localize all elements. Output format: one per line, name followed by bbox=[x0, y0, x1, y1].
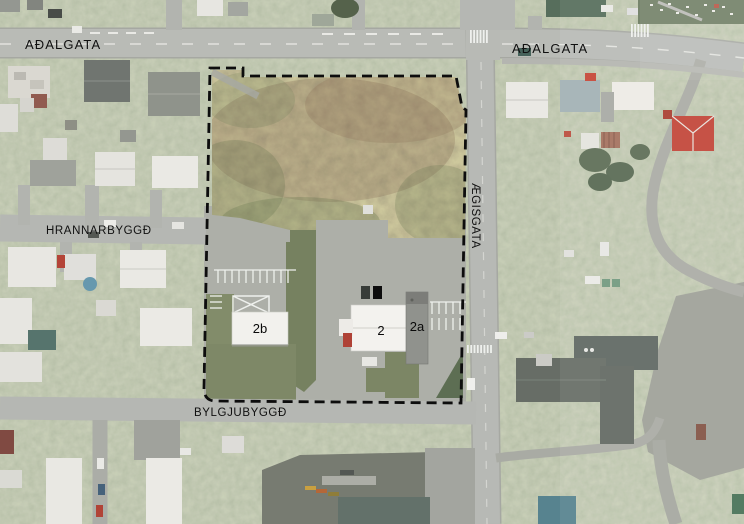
street-label-adalgata-right: AÐALGATA bbox=[512, 41, 588, 56]
building-label-2b: 2b bbox=[253, 321, 267, 336]
building-label-2: 2 bbox=[377, 323, 384, 338]
haze bbox=[0, 0, 744, 524]
street-label-aegisgata: ÆGISGATA bbox=[469, 183, 481, 249]
aerial-map: AÐALGATA AÐALGATA ÆGISGATA HRANNARBYGGÐ … bbox=[0, 0, 744, 524]
aerial-map-screenshot: AÐALGATA AÐALGATA ÆGISGATA HRANNARBYGGÐ … bbox=[0, 0, 744, 524]
street-label-adalgata-left: AÐALGATA bbox=[25, 37, 101, 52]
building-label-2a: 2a bbox=[410, 319, 425, 334]
street-label-hrannarbyggd: HRANNARBYGGÐ bbox=[46, 225, 152, 237]
street-label-bylgjubyggd: BYLGJUBYGGÐ bbox=[194, 407, 287, 419]
